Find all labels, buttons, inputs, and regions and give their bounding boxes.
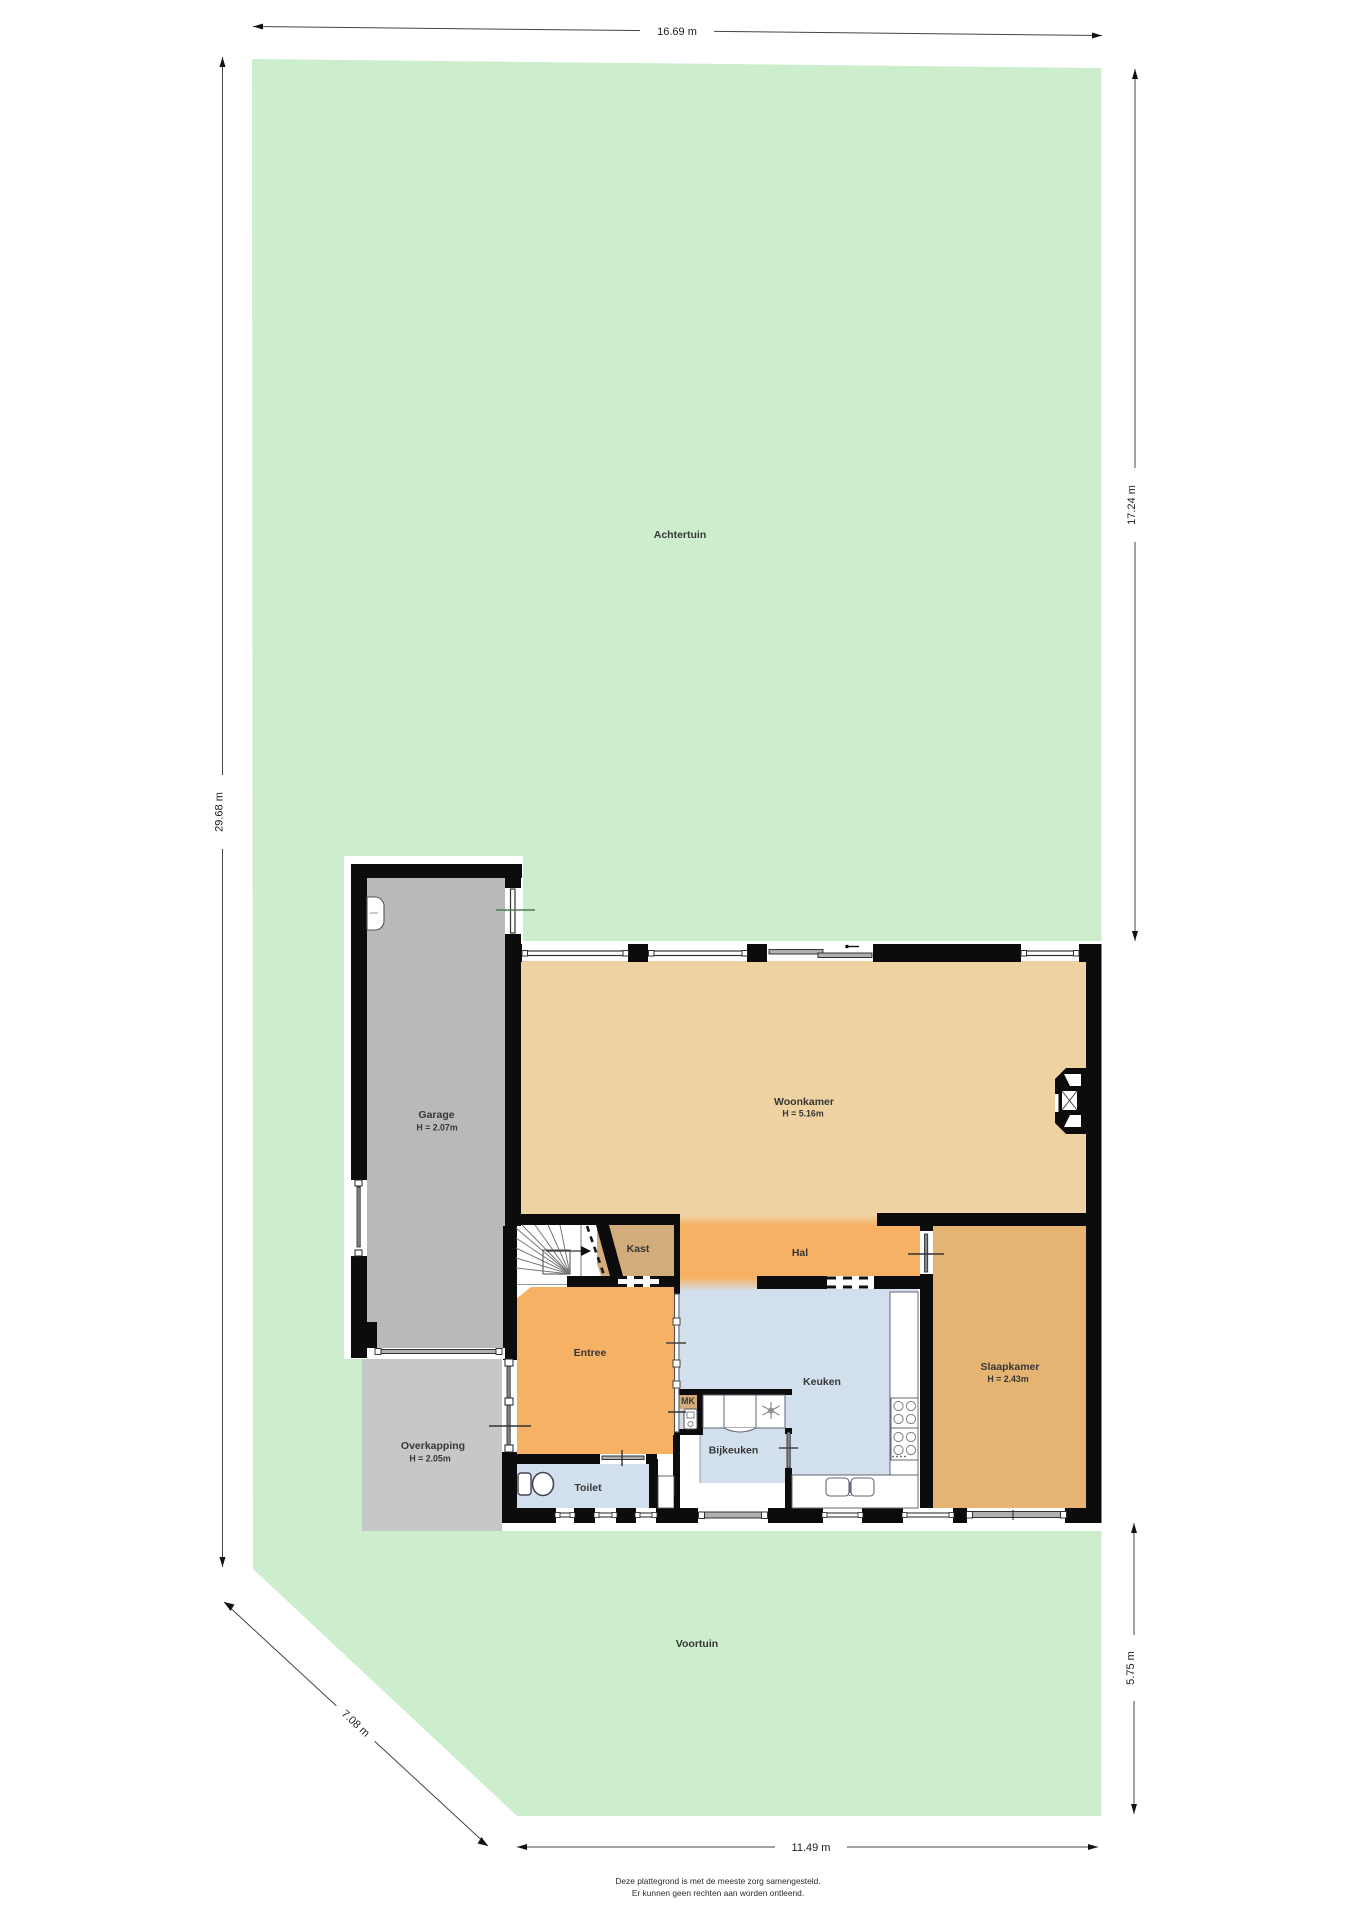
svg-text:11.49 m: 11.49 m xyxy=(792,1842,831,1854)
svg-text:Slaapkamer: Slaapkamer xyxy=(981,1361,1040,1373)
svg-text:Achtertuin: Achtertuin xyxy=(654,529,707,541)
svg-text:Er kunnen geen rechten aan wor: Er kunnen geen rechten aan worden ontlee… xyxy=(632,1888,804,1898)
svg-text:Bijkeuken: Bijkeuken xyxy=(709,1445,759,1457)
svg-text:H = 5.16m: H = 5.16m xyxy=(782,1109,823,1119)
svg-text:Woonkamer: Woonkamer xyxy=(774,1096,834,1108)
svg-text:H = 2.05m: H = 2.05m xyxy=(409,1454,450,1464)
svg-text:Kast: Kast xyxy=(627,1243,650,1255)
svg-text:5.75 m: 5.75 m xyxy=(1125,1651,1137,1685)
svg-text:29.68 m: 29.68 m xyxy=(214,792,226,832)
svg-text:Deze plattegrond is met de mee: Deze plattegrond is met de meeste zorg s… xyxy=(615,1876,820,1886)
svg-text:Overkapping: Overkapping xyxy=(401,1440,465,1452)
svg-text:H = 2.43m: H = 2.43m xyxy=(987,1374,1028,1384)
svg-text:Hal: Hal xyxy=(792,1247,808,1259)
svg-text:H = 2.07m: H = 2.07m xyxy=(416,1123,457,1133)
svg-text:Garage: Garage xyxy=(418,1109,454,1121)
svg-text:MK: MK xyxy=(681,1396,695,1406)
svg-text:Entree: Entree xyxy=(574,1347,607,1359)
svg-text:Toilet: Toilet xyxy=(574,1482,602,1494)
svg-text:17.24 m: 17.24 m xyxy=(1126,485,1138,525)
svg-text:Keuken: Keuken xyxy=(803,1376,841,1388)
svg-text:16.69 m: 16.69 m xyxy=(657,26,697,38)
svg-text:Voortuin: Voortuin xyxy=(676,1638,718,1650)
